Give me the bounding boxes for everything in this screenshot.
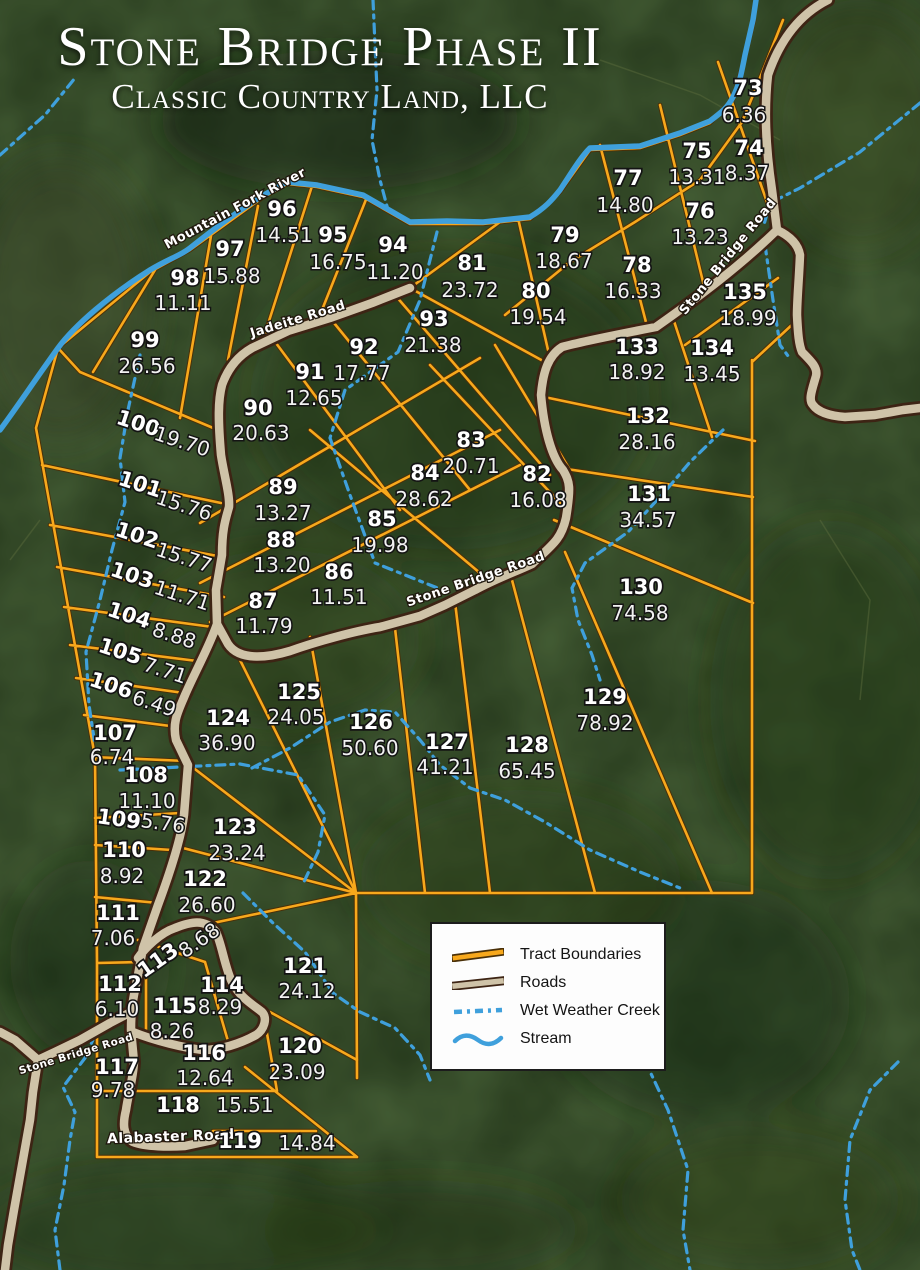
tract-number-107: 107 (93, 721, 137, 745)
tract-number-108: 108 (124, 763, 168, 787)
legend-label: Tract Boundaries (520, 946, 641, 964)
tract-number-95: 95 (318, 223, 347, 247)
tract-acreage-90: 20.63 (232, 421, 289, 445)
tract-number-83: 83 (456, 428, 485, 452)
tract-acreage-84: 28.62 (395, 487, 452, 511)
tract-number-90: 90 (243, 396, 272, 420)
tract-number-122: 122 (183, 867, 227, 891)
tract-acreage-81: 23.72 (441, 278, 498, 302)
tract-acreage-78: 16.33 (604, 279, 661, 303)
tract-acreage-114: 8.29 (198, 995, 243, 1019)
tract-number-124: 124 (206, 706, 250, 730)
tract-number-85: 85 (367, 507, 396, 531)
tract-acreage-118: 15.51 (216, 1093, 273, 1117)
tract-number-97: 97 (215, 237, 244, 261)
tract-acreage-89: 13.27 (254, 501, 311, 525)
legend-row-stream: Stream (452, 1030, 664, 1048)
tract-number-75: 75 (682, 139, 711, 163)
tract-number-115: 115 (153, 994, 197, 1018)
tract-number-134: 134 (690, 336, 734, 360)
tract-acreage-130: 74.58 (611, 601, 668, 625)
tract-number-79: 79 (550, 223, 579, 247)
tract-number-126: 126 (349, 710, 393, 734)
tract-number-130: 130 (619, 575, 663, 599)
tract-acreage-133: 18.92 (608, 360, 665, 384)
tract-acreage-131: 34.57 (619, 508, 676, 532)
stream-swatch-icon (452, 1031, 504, 1047)
tract-acreage-120: 23.09 (268, 1060, 325, 1084)
tract-acreage-91: 12.65 (285, 386, 342, 410)
tract-number-118: 118 (156, 1093, 200, 1117)
tract-acreage-117: 9.78 (91, 1078, 136, 1102)
tract-acreage-74: 8.37 (725, 161, 770, 185)
tract-acreage-94: 11.20 (366, 260, 423, 284)
legend-label: Stream (520, 1030, 572, 1048)
tract-acreage-87: 11.79 (235, 614, 292, 638)
tract-acreage-128: 65.45 (498, 759, 555, 783)
map-canvas: Mountain Fork RiverJadeite RoadStone Bri… (0, 0, 920, 1270)
tract-acreage-126: 50.60 (341, 736, 398, 760)
creek-swatch-icon (452, 1004, 504, 1018)
tract-number-129: 129 (583, 685, 627, 709)
tract-number-87: 87 (248, 589, 277, 613)
tract-acreage-112: 6.10 (95, 997, 140, 1021)
tract-acreage-75: 13.31 (668, 165, 725, 189)
tract-number-127: 127 (425, 730, 469, 754)
tract-number-110: 110 (102, 838, 146, 862)
tract-acreage-122: 26.60 (178, 893, 235, 917)
tract-number-98: 98 (170, 266, 199, 290)
legend: Tract Boundaries Roads Wet Weather Creek… (430, 922, 666, 1071)
tract-acreage-111: 7.06 (91, 926, 136, 950)
map-title: Stone Bridge Phase II (0, 18, 660, 77)
tract-number-114: 114 (200, 973, 244, 997)
tract-number-78: 78 (622, 253, 651, 277)
legend-label: Wet Weather Creek (520, 1002, 660, 1020)
tract-number-86: 86 (324, 560, 353, 584)
plat-map: Mountain Fork RiverJadeite RoadStone Bri… (0, 0, 920, 1270)
tract-acreage-77: 14.80 (596, 193, 653, 217)
road-swatch-icon (452, 976, 504, 990)
tract-number-77: 77 (613, 166, 642, 190)
tract-acreage-95: 16.75 (309, 250, 366, 274)
tract-acreage-134: 13.45 (683, 362, 740, 386)
tract-number-81: 81 (457, 251, 486, 275)
tract-acreage-121: 24.12 (278, 979, 335, 1003)
tract-acreage-82: 16.08 (509, 488, 566, 512)
tract-acreage-76: 13.23 (671, 225, 728, 249)
tract-acreage-96: 14.51 (255, 223, 312, 247)
map-subtitle: Classic Country Land, LLC (0, 77, 660, 117)
tract-number-120: 120 (278, 1034, 322, 1058)
tract-acreage-123: 23.24 (208, 841, 265, 865)
tract-acreage-127: 41.21 (416, 755, 473, 779)
tract-number-132: 132 (626, 404, 670, 428)
tract-number-74: 74 (734, 136, 763, 160)
tract-number-88: 88 (266, 528, 295, 552)
tract-number-135: 135 (723, 280, 767, 304)
tract-number-84: 84 (410, 461, 439, 485)
tract-acreage-92: 17.77 (333, 361, 390, 385)
legend-row-roads: Roads (452, 974, 664, 992)
tract-number-73: 73 (733, 76, 762, 100)
tract-number-91: 91 (295, 360, 324, 384)
tract-number-128: 128 (505, 733, 549, 757)
tract-number-92: 92 (349, 335, 378, 359)
tract-number-116: 116 (182, 1041, 226, 1065)
tract-acreage-93: 21.38 (404, 333, 461, 357)
tract-acreage-88: 13.20 (253, 553, 310, 577)
tract-acreage-83: 20.71 (442, 454, 499, 478)
tract-acreage-129: 78.92 (576, 711, 633, 735)
tract-acreage-116: 12.64 (176, 1066, 233, 1090)
tract-acreage-110: 8.92 (100, 864, 145, 888)
tract-number-99: 99 (130, 328, 159, 352)
map-title-block: Stone Bridge Phase II Classic Country La… (0, 18, 660, 117)
tract-acreage-99: 26.56 (118, 354, 175, 378)
tract-acreage-79: 18.67 (535, 249, 592, 273)
tract-acreage-115: 8.26 (150, 1019, 195, 1043)
tract-acreage-124: 36.90 (198, 731, 255, 755)
tract-acreage-119: 14.84 (278, 1131, 335, 1155)
tract-acreage-80: 19.54 (509, 305, 566, 329)
tract-acreage-132: 28.16 (618, 430, 675, 454)
tract-number-123: 123 (213, 815, 257, 839)
tract-acreage-98: 11.11 (154, 291, 211, 315)
tract-number-125: 125 (277, 680, 321, 704)
tract-number-111: 111 (96, 901, 140, 925)
tract-acreage-85: 19.98 (351, 533, 408, 557)
tract-number-82: 82 (522, 462, 551, 486)
tract-number-94: 94 (378, 233, 407, 257)
legend-row-wet-weather-creek: Wet Weather Creek (452, 1002, 664, 1020)
tract-number-89: 89 (268, 475, 297, 499)
tract-acreage-125: 24.05 (267, 705, 324, 729)
tract-number-80: 80 (521, 279, 550, 303)
tract-number-117: 117 (95, 1055, 139, 1079)
tract-acreage-97: 15.88 (203, 264, 260, 288)
tract-acreage-73: 6.36 (722, 103, 767, 127)
tract-acreage-135: 18.99 (719, 306, 776, 330)
tract-number-133: 133 (615, 335, 659, 359)
tract-number-112: 112 (98, 972, 142, 996)
legend-row-tract-boundaries: Tract Boundaries (452, 946, 664, 964)
tract-number-131: 131 (627, 482, 671, 506)
tract-number-119: 119 (218, 1129, 262, 1153)
tract-number-93: 93 (419, 307, 448, 331)
tract-boundary-swatch-icon (452, 948, 504, 962)
tract-number-76: 76 (685, 199, 714, 223)
tract-number-96: 96 (267, 197, 296, 221)
tract-acreage-86: 11.51 (310, 585, 367, 609)
tract-number-121: 121 (283, 954, 327, 978)
legend-label: Roads (520, 974, 566, 992)
